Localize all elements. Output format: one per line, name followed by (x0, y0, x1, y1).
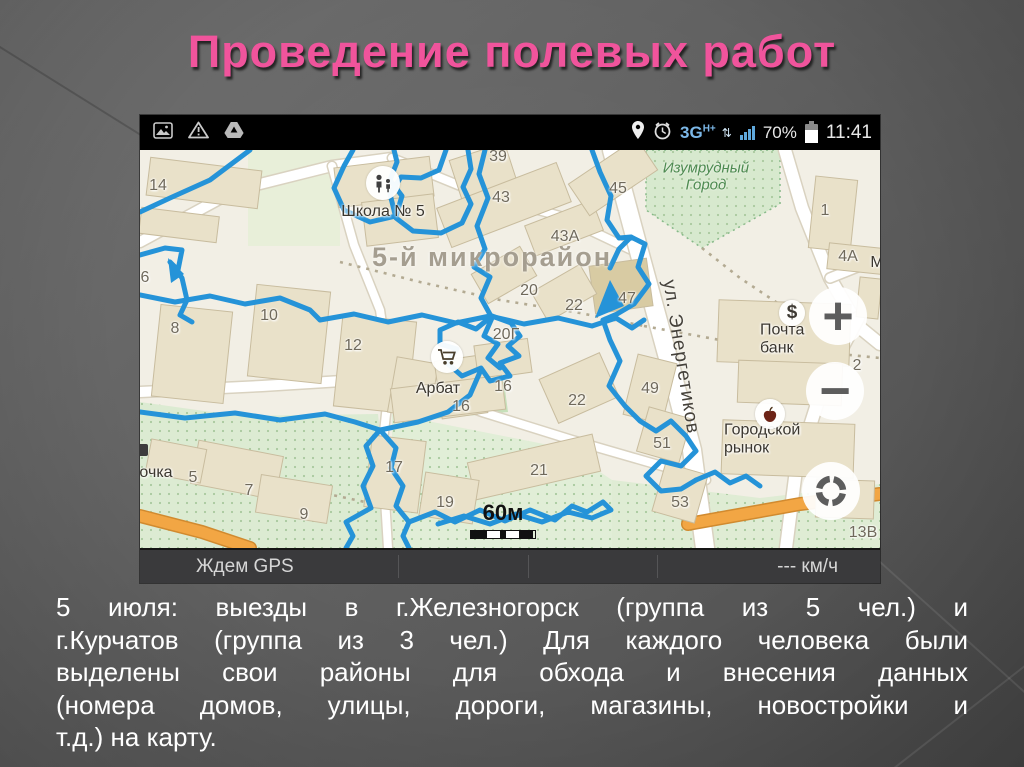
bank-poi-icon: $ (779, 300, 805, 326)
warning-icon (188, 121, 209, 144)
network-type-label: 3GH+ (680, 124, 716, 141)
gps-status-label: Ждем GPS (196, 556, 294, 578)
body-text: 5 июля: выезды в г.Железногорск (группа … (56, 591, 968, 754)
school-poi-icon (366, 166, 400, 200)
bottom-bar-divider (528, 555, 529, 578)
shopping-cart-poi-icon (431, 341, 463, 373)
gallery-icon (153, 122, 173, 144)
data-activity-icon: ⇅ (722, 126, 732, 140)
market-apple-poi-icon (755, 399, 785, 429)
signal-bars-icon (740, 125, 755, 140)
zoom-out-button[interactable]: − (806, 362, 864, 420)
phone-bottom-bar: Ждем GPS --- км/ч (140, 548, 880, 583)
drive-icon (224, 121, 244, 144)
map-view[interactable]: 146394343А4514АМ20224721081220Г161622495… (140, 150, 880, 548)
phone-status-bar: 3GH+ ⇅ 70% 11:41 (140, 115, 880, 150)
scale-bar (470, 530, 536, 539)
alarm-clock-icon (653, 121, 672, 145)
body-line: т.д.) на карту. (56, 721, 968, 754)
body-line: (номера домов, улицы, дороги, магазины, … (56, 689, 968, 722)
body-line: выделены свои районы для обхода и внесен… (56, 656, 968, 689)
zoom-in-button[interactable]: + (809, 287, 867, 345)
bottom-bar-divider (657, 555, 658, 578)
map-canvas (140, 150, 880, 548)
scale-label: 60м (470, 500, 536, 526)
slide-title: Проведение полевых работ (0, 26, 1024, 78)
map-scale: 60м (470, 500, 536, 539)
body-line: 5 июля: выезды в г.Железногорск (группа … (56, 591, 968, 624)
bottom-bar-divider (398, 555, 399, 578)
phone-screenshot: 3GH+ ⇅ 70% 11:41 146394343А4514АМ2022472… (140, 115, 880, 583)
presentation-slide: Проведение полевых работ (0, 0, 1024, 767)
compass-locate-button[interactable] (802, 462, 860, 520)
battery-icon (805, 124, 818, 143)
clock-time: 11:41 (826, 122, 872, 144)
battery-percent-label: 70% (763, 123, 797, 143)
poi-pin-icon (140, 444, 148, 456)
location-pin-icon (631, 120, 645, 145)
body-line: г.Курчатов (группа из 3 чел.) Для каждог… (56, 624, 968, 657)
speed-label: --- км/ч (777, 556, 838, 578)
